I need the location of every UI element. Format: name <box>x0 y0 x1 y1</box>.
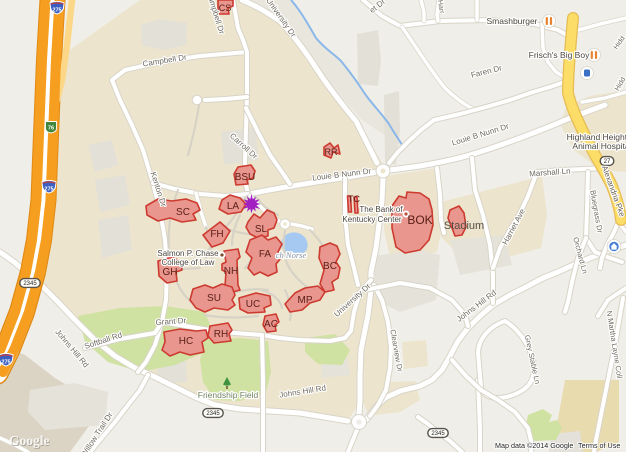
svg-text:Animal Hospita: Animal Hospita <box>572 141 626 151</box>
svg-text:LA: LA <box>227 201 240 212</box>
svg-text:Smashburger: Smashburger <box>486 16 537 26</box>
svg-text:AC: AC <box>264 319 278 330</box>
svg-text:ch Norse: ch Norse <box>276 250 307 260</box>
svg-text:Salmon P. Chase: Salmon P. Chase <box>157 249 219 258</box>
svg-text:FH: FH <box>210 229 223 240</box>
svg-text:College of Law: College of Law <box>162 258 215 267</box>
svg-text:SC: SC <box>176 207 190 218</box>
svg-text:BSU: BSU <box>235 172 256 183</box>
svg-text:Stadium: Stadium <box>444 220 484 232</box>
svg-text:Map data ©2014 Google: Map data ©2014 Google <box>495 441 573 450</box>
svg-text:TC: TC <box>348 194 360 204</box>
svg-text:2345: 2345 <box>23 281 37 287</box>
svg-text:BC: BC <box>323 261 337 272</box>
svg-text:NH: NH <box>224 266 238 277</box>
svg-text:Frisch's Big Boy: Frisch's Big Boy <box>529 50 590 60</box>
svg-text:275: 275 <box>44 187 53 193</box>
svg-text:FA: FA <box>259 249 272 260</box>
svg-text:CS: CS <box>219 3 232 13</box>
svg-text:GH: GH <box>163 267 178 278</box>
svg-text:The Bank of: The Bank of <box>359 205 403 214</box>
svg-text:SL: SL <box>255 224 268 235</box>
svg-text:275: 275 <box>1 360 10 366</box>
svg-text:Kentucky Center: Kentucky Center <box>342 215 401 224</box>
svg-text:RH: RH <box>214 329 228 340</box>
svg-text:2345: 2345 <box>431 431 445 437</box>
svg-text:76: 76 <box>48 126 54 132</box>
svg-text:RR: RR <box>325 147 338 157</box>
svg-text:HC: HC <box>179 336 193 347</box>
svg-text:2345: 2345 <box>206 411 220 417</box>
svg-text:MP: MP <box>298 295 313 306</box>
svg-text:Friendship Field: Friendship Field <box>198 390 259 400</box>
svg-text:Terms of Use: Terms of Use <box>578 441 620 450</box>
svg-text:BOK: BOK <box>407 213 432 227</box>
svg-text:275: 275 <box>52 8 61 14</box>
svg-text:UC: UC <box>246 299 260 310</box>
svg-text:Google: Google <box>9 433 50 448</box>
svg-text:SU: SU <box>207 293 221 304</box>
